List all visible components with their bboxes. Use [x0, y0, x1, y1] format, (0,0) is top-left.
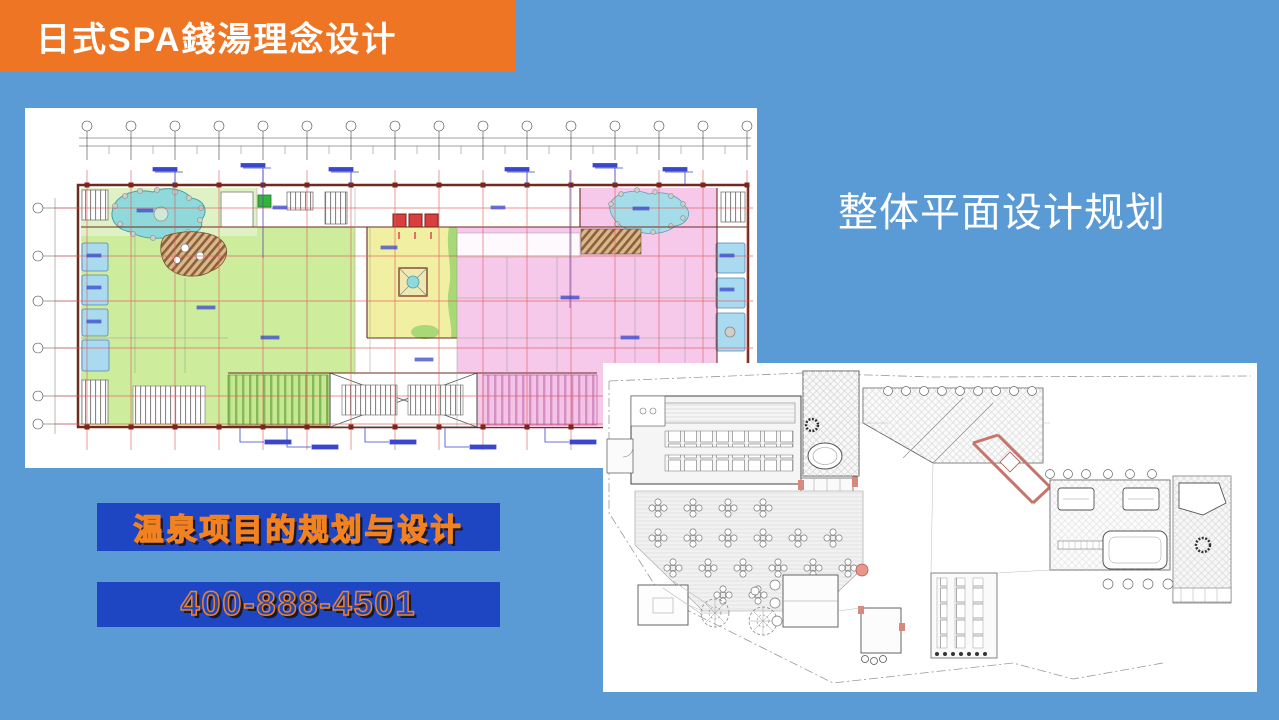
- stair-hatch-right: [721, 192, 745, 222]
- entrance-stub: [607, 439, 633, 473]
- bottom-rooms: [783, 575, 905, 665]
- stair-hatch: [287, 192, 313, 210]
- dimension-strip-left: [33, 198, 78, 434]
- promo-banner: 温泉项目的规划与设计: [97, 503, 500, 551]
- secondary-floor-plan-figure: [603, 363, 1257, 692]
- elevator-green: [258, 195, 271, 207]
- title-banner: 日式SPA錢湯理念设计: [0, 0, 516, 72]
- salmon-accent: [798, 480, 804, 490]
- salmon-accent: [852, 475, 858, 487]
- stair-hatch-left: [82, 190, 108, 220]
- linen-corridor: [457, 233, 580, 257]
- shower-stalls: [133, 386, 205, 424]
- right-garden: [1173, 476, 1231, 603]
- locker-room-green: [228, 375, 328, 425]
- phone-number: 400-888-4501: [181, 585, 417, 624]
- section-title: 整体平面设计规划: [838, 180, 1166, 238]
- stair-bottom-left: [82, 380, 108, 424]
- slide-title: 日式SPA錢湯理念设计: [36, 12, 397, 61]
- salmon-dot: [856, 564, 868, 576]
- right-pools: [716, 243, 745, 351]
- salmon-accent: [899, 623, 905, 631]
- oval-bath-courtyard: [803, 371, 859, 476]
- garden-hut: [638, 585, 688, 625]
- locker-bench-block: [931, 573, 997, 658]
- diagonal-rooms-block: [863, 388, 1050, 503]
- wood-deck-right: [581, 229, 641, 254]
- restaurant-block: [607, 396, 801, 484]
- locker-room-pink: [483, 375, 597, 425]
- outdoor-bath-band: [1050, 480, 1170, 570]
- salmon-accent: [858, 606, 864, 614]
- secondary-floor-plan-drawing: [603, 363, 1257, 692]
- presentation-slide: 日式SPA錢湯理念设计 整体平面设计规划: [0, 0, 1279, 720]
- phone-banner: 400-888-4501: [97, 582, 500, 627]
- dimension-strip-top: [79, 121, 752, 160]
- promo-text: 温泉项目的规划与设计: [134, 505, 464, 549]
